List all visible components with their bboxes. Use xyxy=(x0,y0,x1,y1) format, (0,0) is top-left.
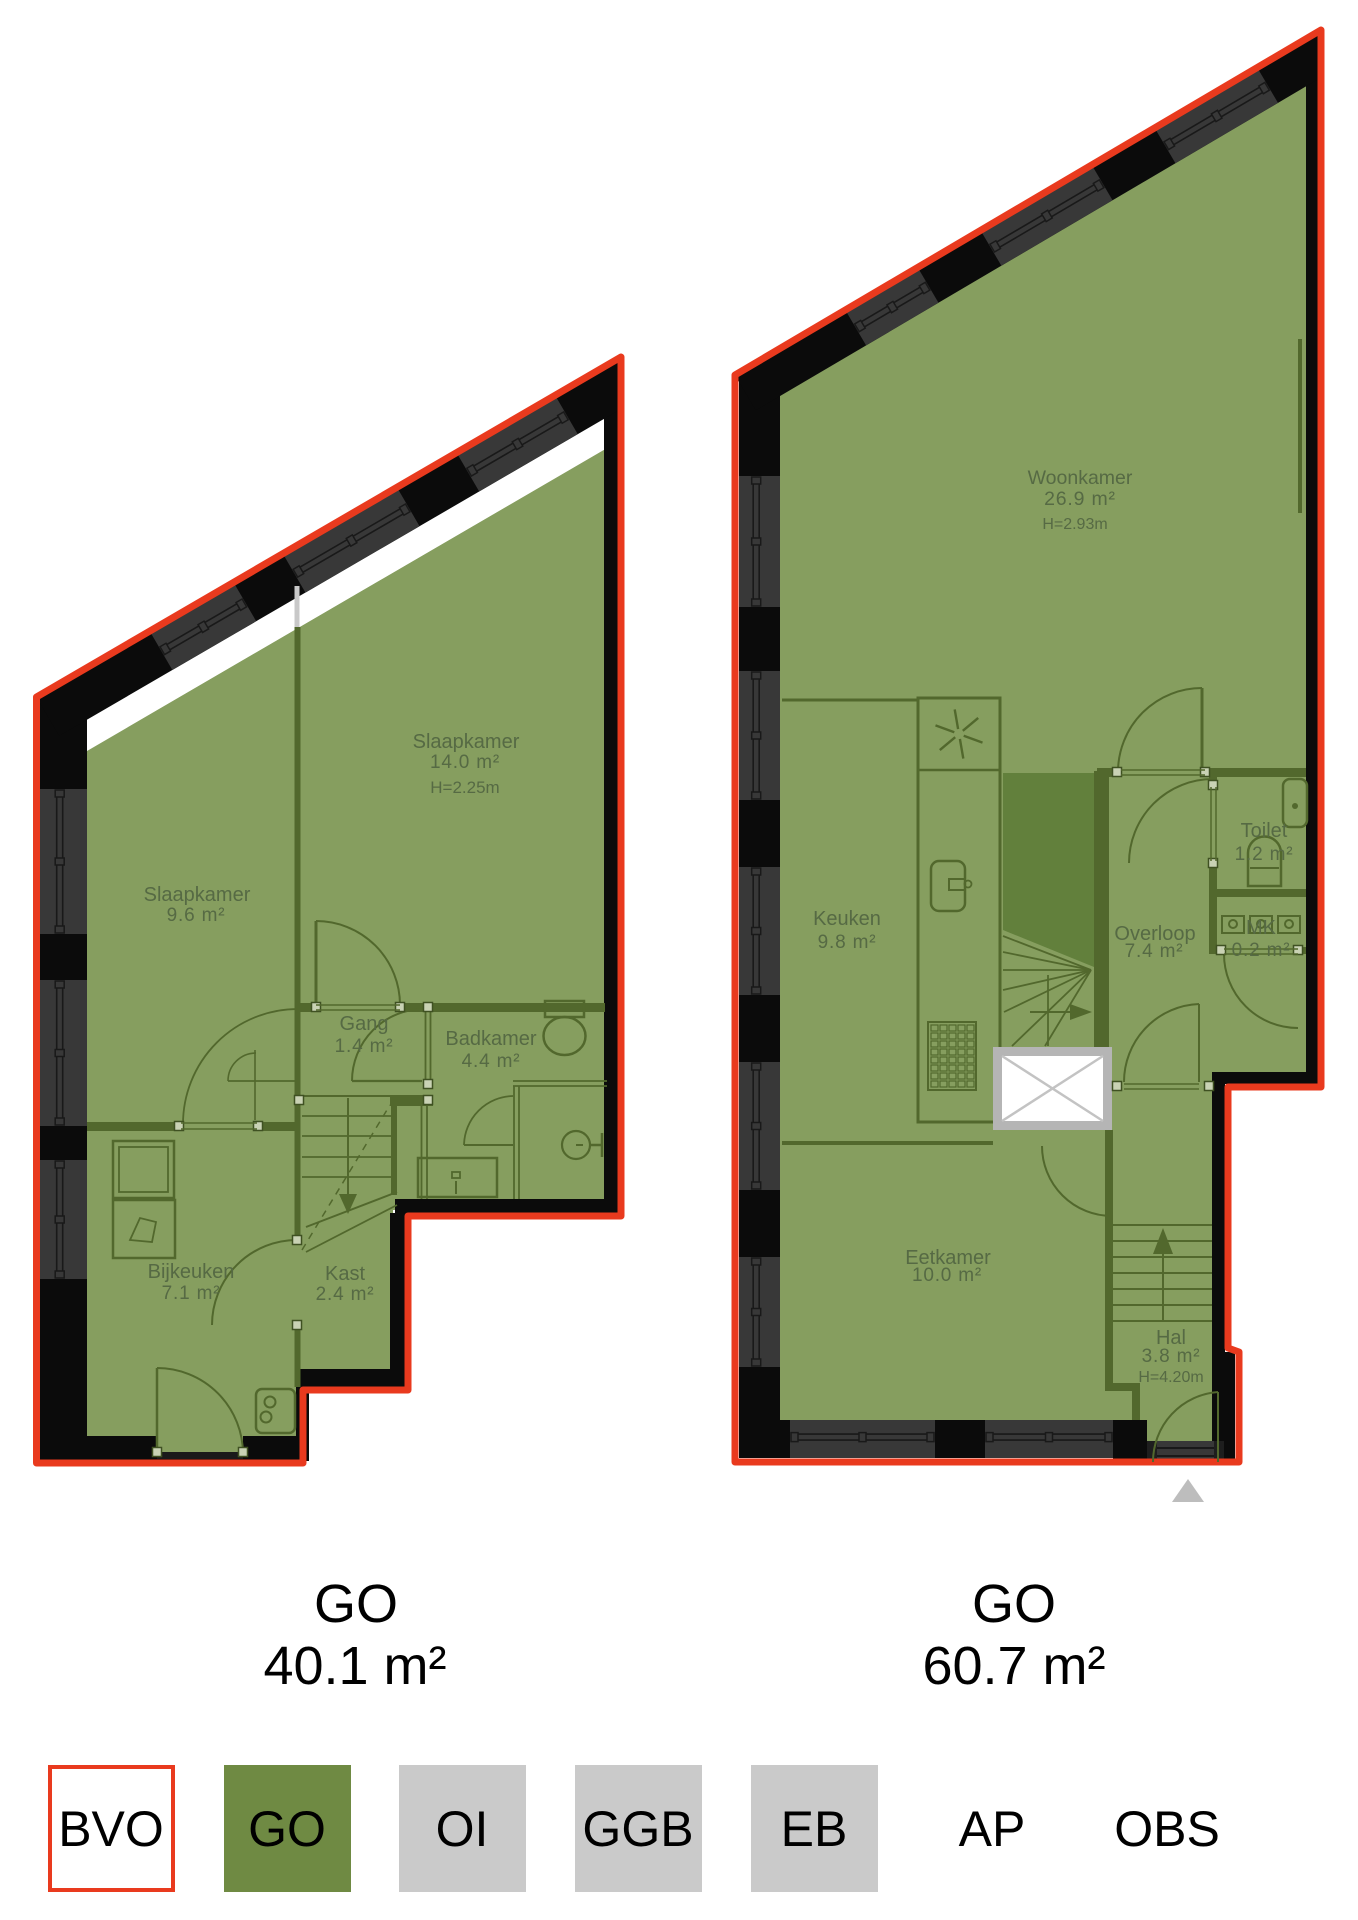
svg-text:Keuken: Keuken xyxy=(813,908,881,930)
svg-text:AP: AP xyxy=(959,1801,1026,1857)
svg-text:7.1 m²: 7.1 m² xyxy=(162,1283,221,1304)
svg-text:Woonkamer: Woonkamer xyxy=(1028,467,1133,489)
svg-text:Kast: Kast xyxy=(325,1263,365,1285)
svg-text:3.8 m²: 3.8 m² xyxy=(1142,1346,1201,1367)
svg-text:Toilet: Toilet xyxy=(1241,820,1288,842)
svg-text:14.0 m²: 14.0 m² xyxy=(430,752,500,773)
svg-text:10.0 m²: 10.0 m² xyxy=(912,1265,982,1286)
svg-text:OI: OI xyxy=(436,1801,489,1857)
svg-text:40.1 m²: 40.1 m² xyxy=(263,1636,446,1696)
svg-text:GO: GO xyxy=(314,1574,398,1634)
svg-text:H=2.25m: H=2.25m xyxy=(430,778,499,797)
svg-text:26.9 m²: 26.9 m² xyxy=(1044,488,1116,510)
svg-text:7.4 m²: 7.4 m² xyxy=(1125,941,1184,962)
svg-text:OBS: OBS xyxy=(1114,1801,1220,1857)
svg-text:9.6 m²: 9.6 m² xyxy=(167,905,226,926)
svg-text:Bijkeuken: Bijkeuken xyxy=(148,1261,235,1283)
svg-text:H=4.20m: H=4.20m xyxy=(1138,1369,1203,1386)
svg-text:Slaapkamer: Slaapkamer xyxy=(413,731,520,753)
svg-text:1.2 m²: 1.2 m² xyxy=(1235,844,1294,865)
svg-text:H=2.93m: H=2.93m xyxy=(1042,516,1107,533)
svg-text:60.7 m²: 60.7 m² xyxy=(922,1636,1105,1696)
svg-text:EB: EB xyxy=(781,1801,848,1857)
svg-text:9.8 m²: 9.8 m² xyxy=(818,932,877,953)
svg-text:0.2 m²: 0.2 m² xyxy=(1232,940,1291,961)
svg-text:Slaapkamer: Slaapkamer xyxy=(144,884,251,906)
svg-text:GO: GO xyxy=(248,1801,326,1857)
svg-text:2.4 m²: 2.4 m² xyxy=(316,1284,375,1305)
svg-text:GO: GO xyxy=(972,1574,1056,1634)
svg-text:1.4 m²: 1.4 m² xyxy=(335,1036,394,1057)
svg-text:Gang: Gang xyxy=(340,1013,389,1035)
svg-text:4.4 m²: 4.4 m² xyxy=(462,1051,521,1072)
svg-text:Badkamer: Badkamer xyxy=(445,1028,536,1050)
svg-text:BVO: BVO xyxy=(58,1801,164,1857)
svg-text:GGB: GGB xyxy=(582,1801,693,1857)
svg-text:MK: MK xyxy=(1246,917,1277,939)
